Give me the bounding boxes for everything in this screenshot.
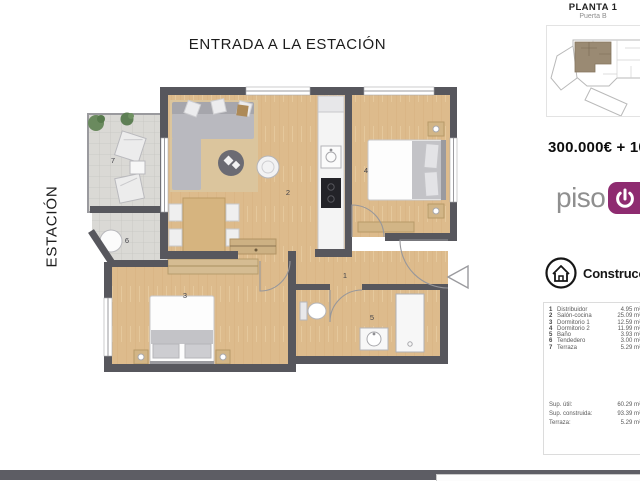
side-table-icon	[236, 104, 248, 116]
pillow-icon	[424, 144, 439, 169]
room-label-5: 5	[370, 313, 374, 322]
builder-name: Construcciones	[583, 266, 640, 281]
entrance-marker-icon	[448, 266, 468, 288]
chair-icon	[226, 204, 239, 221]
sofa-seat-icon	[172, 114, 254, 139]
room-label-6: 6	[125, 236, 129, 245]
room-label-2: 2	[286, 188, 290, 197]
price-text: 300.000€ + 10%	[548, 139, 640, 156]
coffee-table-icon	[218, 150, 244, 176]
shower-icon	[396, 294, 424, 352]
cooktop-icon	[321, 178, 341, 208]
legend-totals: Sup. útil: 60.29 m² Sup. construida: 93.…	[549, 401, 640, 428]
legend-panel: 1 Distribuidor 4.95 m² 2 Salón-cocina 25…	[543, 302, 640, 455]
pisoon-logo-badge: n	[608, 182, 640, 214]
room-label-1: 1	[343, 271, 347, 280]
dresser-icon	[358, 222, 414, 232]
total-row: Sup. construida: 93.39 m²	[549, 410, 640, 419]
chair-icon	[169, 204, 182, 221]
cushion-icon	[211, 99, 226, 114]
pillow-icon	[153, 344, 179, 358]
legend-row: 7 Terraza 5.29 m²	[549, 345, 640, 351]
dining-table-icon	[183, 198, 225, 252]
keyplan-thumbnail	[546, 25, 640, 117]
keyplan-subtitle: Puerta B	[546, 13, 640, 20]
fridge-icon	[318, 96, 344, 112]
pisoon-logo-text: piso	[556, 182, 605, 214]
keyplan-drawing	[547, 26, 640, 116]
total-row: Sup. útil: 60.29 m²	[549, 401, 640, 410]
total-row: Terraza: 5.29 m²	[549, 419, 640, 428]
pisoon-logo: piso n	[556, 182, 640, 214]
entrance-label: ENTRADA A LA ESTACIÓN	[0, 36, 575, 53]
pillow-icon	[185, 344, 211, 358]
kitchen-counter-icon	[318, 96, 344, 254]
headboard-icon	[441, 140, 446, 200]
room-label-3: 3	[183, 291, 187, 300]
power-icon	[614, 187, 636, 209]
blanket-icon	[151, 330, 213, 344]
station-label: ESTACIÓN	[44, 167, 61, 287]
lounge-chair-icon	[115, 174, 145, 204]
builder-logo: Construcciones	[543, 255, 640, 291]
room-label-7: 7	[111, 156, 115, 165]
kitchen-icons	[318, 96, 344, 254]
pillow-icon	[424, 172, 439, 197]
terrace-table-icon	[130, 161, 145, 174]
chair-icon	[169, 229, 182, 246]
toilet-icon	[308, 303, 326, 319]
room-label-4: 4	[364, 166, 368, 175]
armchair-icon	[257, 156, 279, 178]
toilet-tank-icon	[300, 302, 307, 320]
sofa-chaise-icon	[172, 138, 201, 190]
house-icon	[543, 255, 579, 291]
keyplan-title: PLANTA 1	[546, 2, 640, 13]
